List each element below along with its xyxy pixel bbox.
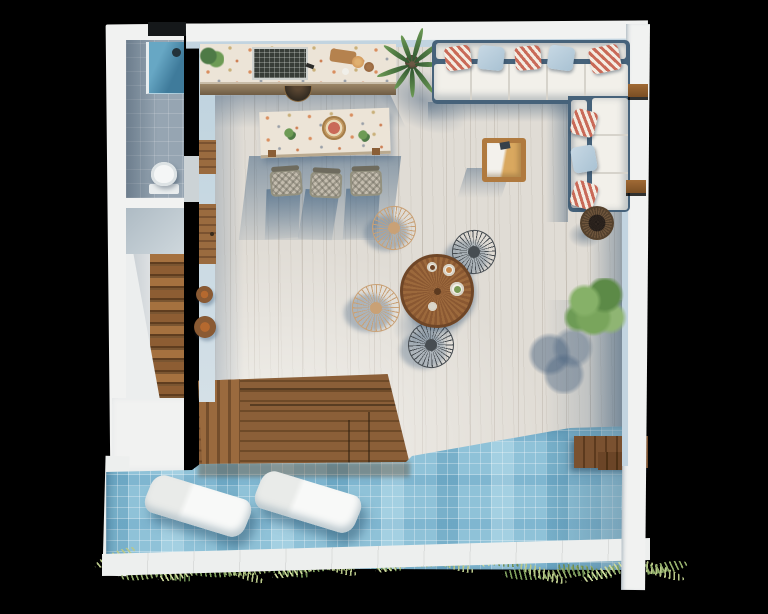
sofa-vertical-run: [568, 96, 630, 212]
stair-tread: [150, 362, 186, 372]
wall-bracket: [628, 84, 648, 97]
stool-seat: [350, 169, 383, 196]
roof-hatch: [148, 22, 186, 36]
shaft-opening: [184, 156, 199, 202]
stool-seat: [269, 169, 303, 197]
sofa-seam: [546, 64, 548, 100]
dining-plate: [427, 262, 437, 272]
shower-head-icon: [172, 48, 181, 57]
dining-plate: [450, 282, 464, 296]
counter-plant: [198, 46, 224, 68]
wall-bracket: [626, 180, 646, 193]
plate-food: [446, 267, 452, 273]
deck-steps: [198, 374, 416, 470]
dining-table-center: [434, 288, 441, 295]
grill-icon: [252, 47, 308, 80]
pillow-plain: [546, 44, 575, 71]
dining-chair-hub: [368, 300, 385, 317]
stair-tread: [150, 290, 186, 300]
bar-stool: [309, 167, 343, 199]
utility-shaft: [184, 24, 199, 482]
toilet: [151, 162, 177, 186]
plate-food: [430, 265, 435, 270]
bar-plant: [284, 128, 296, 140]
stair-tread: [150, 302, 186, 312]
bar-table-leg: [268, 150, 276, 157]
stair-tread: [150, 338, 186, 348]
bar-plant: [358, 130, 370, 142]
sofa-horizontal-run: [432, 40, 630, 104]
dining-plate: [428, 302, 437, 311]
stair-tread: [150, 350, 186, 360]
deck-step-edge: [240, 388, 400, 390]
cup: [342, 68, 349, 75]
terrace-plan-render: [0, 0, 768, 614]
bar-stool: [269, 165, 303, 197]
sofa-seam: [584, 64, 586, 100]
pool-deck-reflection: [198, 462, 410, 477]
bar-stool: [349, 165, 382, 196]
deck-step-edge: [250, 404, 402, 406]
bowl: [352, 56, 364, 68]
dining-chair-hub: [386, 220, 401, 235]
pillow-stripe: [514, 45, 542, 71]
pillow-stripe: [443, 44, 472, 71]
basket-planter: [580, 206, 614, 240]
stair-tread: [150, 314, 186, 324]
stair-tread: [150, 266, 186, 276]
floor-basket: [194, 316, 216, 338]
stair-tread: [150, 254, 186, 264]
plate-food: [454, 286, 461, 293]
palm-frond: [410, 67, 416, 97]
stool-backrest: [351, 166, 379, 172]
floor-basket: [196, 286, 213, 303]
bar-table-leg: [372, 148, 380, 155]
door-knob-icon: [210, 232, 214, 236]
bar-plate: [322, 116, 346, 140]
stair-tread: [150, 326, 186, 336]
dining-chair-hub: [466, 244, 481, 259]
pillow-plain: [477, 45, 505, 72]
dining-plate: [443, 264, 455, 276]
stool-seat: [309, 171, 342, 199]
stair-landing: [126, 208, 186, 254]
sofa-seam: [592, 134, 628, 136]
deck-step-edge: [348, 420, 350, 464]
stair-tread: [150, 278, 186, 288]
sofa-seam: [592, 172, 628, 174]
deck-step-edge: [368, 412, 370, 464]
bowl: [364, 62, 374, 72]
sofa-seam: [508, 64, 510, 100]
tree: [564, 278, 628, 338]
plate-food: [430, 304, 435, 309]
sofa-seam: [470, 64, 472, 100]
wall-cabinet-panel: [199, 140, 216, 174]
dining-chair-hub: [423, 337, 438, 352]
pillow-plain: [570, 144, 598, 174]
